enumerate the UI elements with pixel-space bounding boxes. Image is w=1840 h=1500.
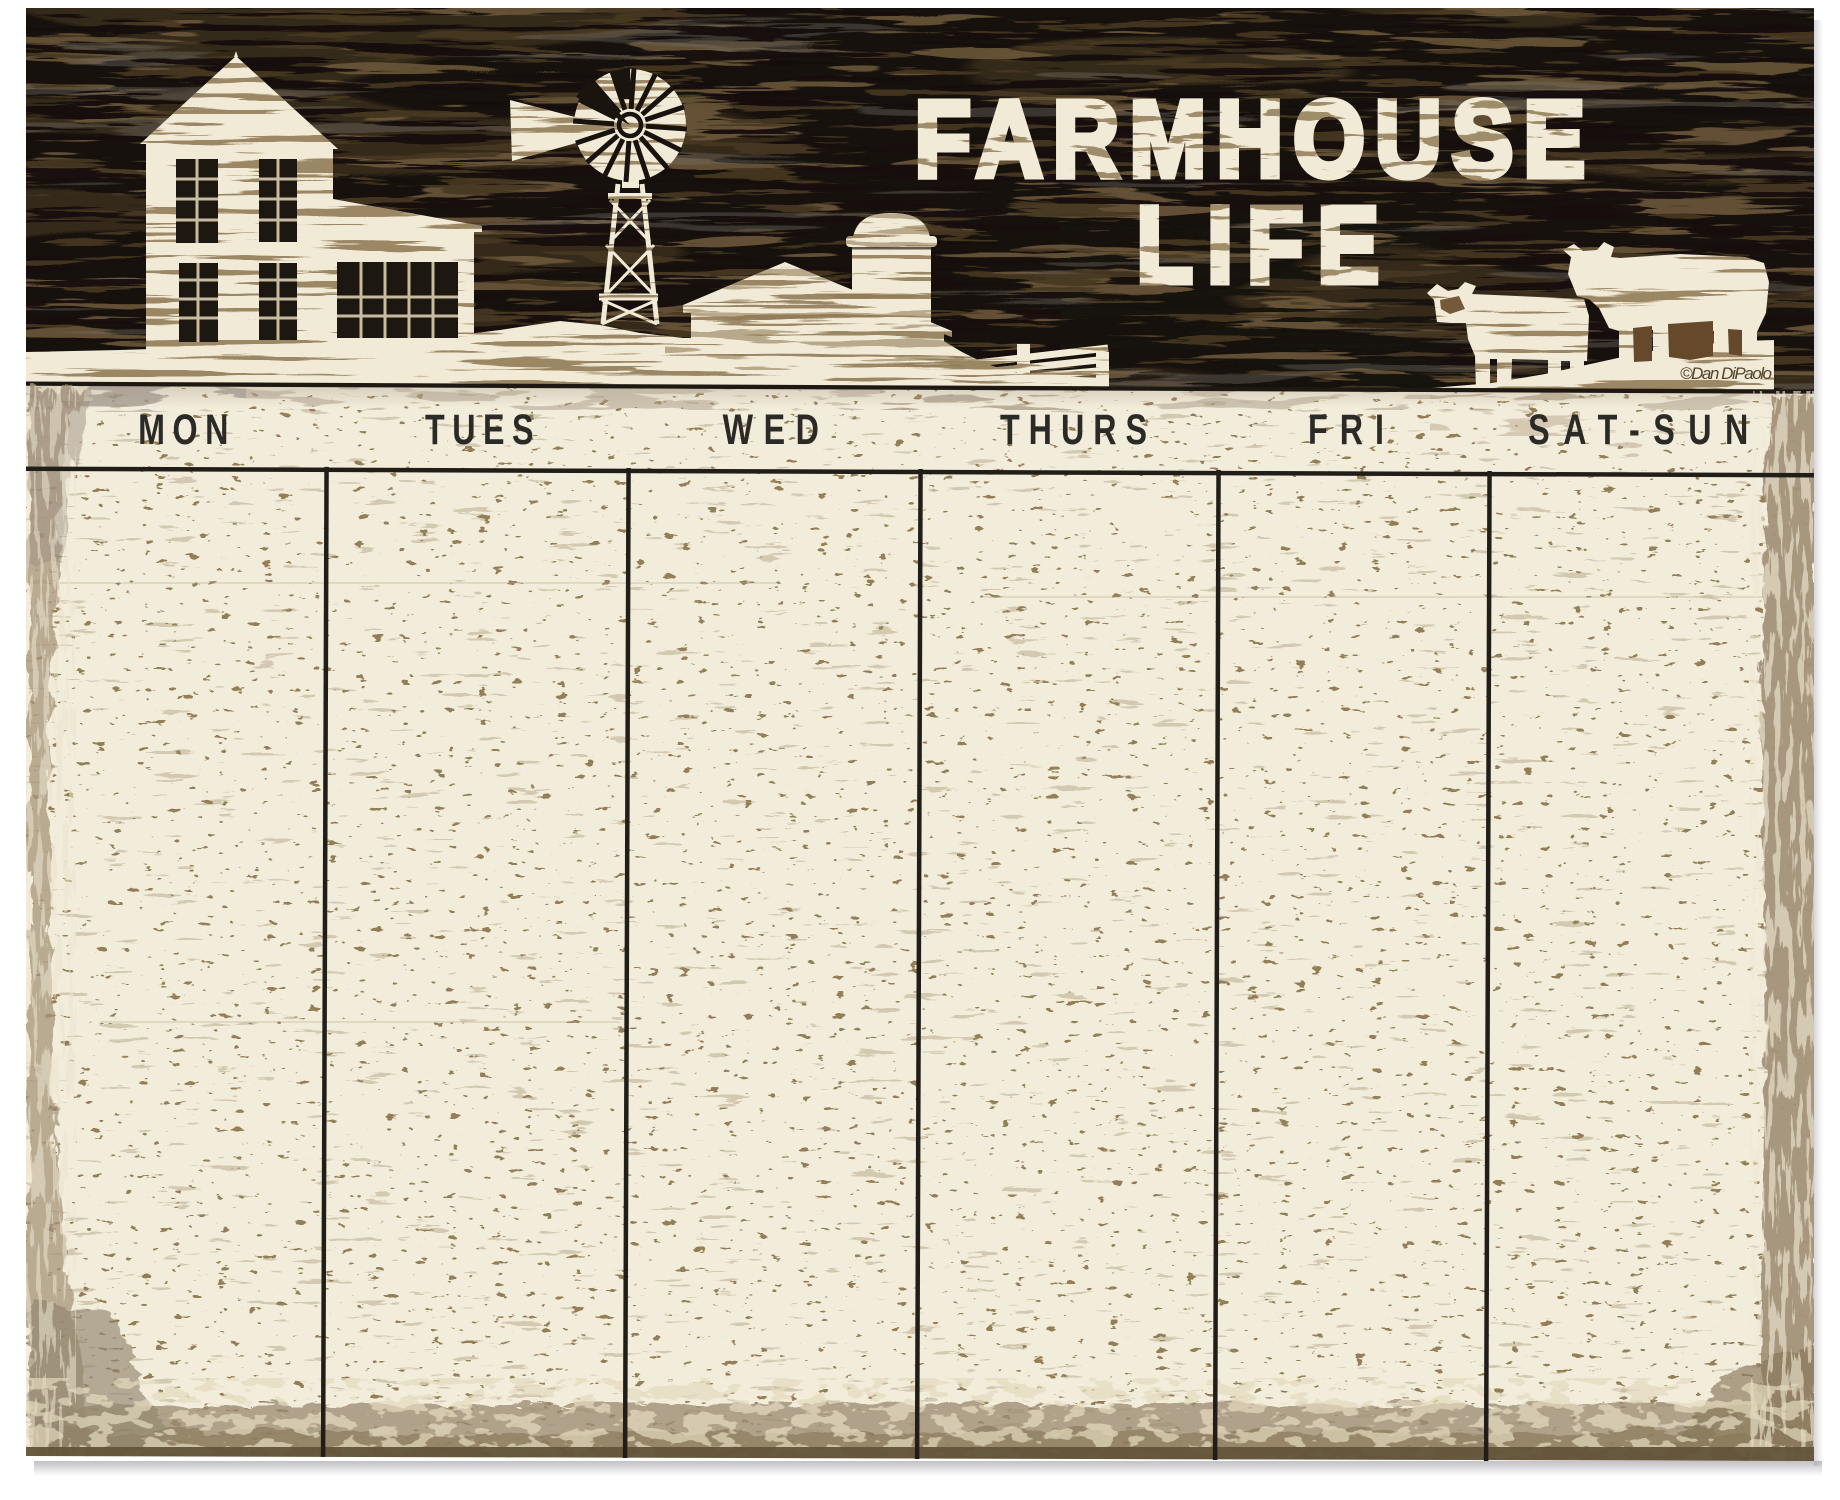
svg-text:©Dan DiPaolo: ©Dan DiPaolo <box>1680 364 1772 383</box>
svg-text:FRI: FRI <box>1308 407 1396 455</box>
svg-text:THURS: THURS <box>1000 407 1156 455</box>
svg-text:SAT-SUN: SAT-SUN <box>1528 407 1762 455</box>
svg-text:TUES: TUES <box>425 407 541 455</box>
svg-text:MON: MON <box>138 407 236 455</box>
svg-text:WED: WED <box>723 407 830 455</box>
